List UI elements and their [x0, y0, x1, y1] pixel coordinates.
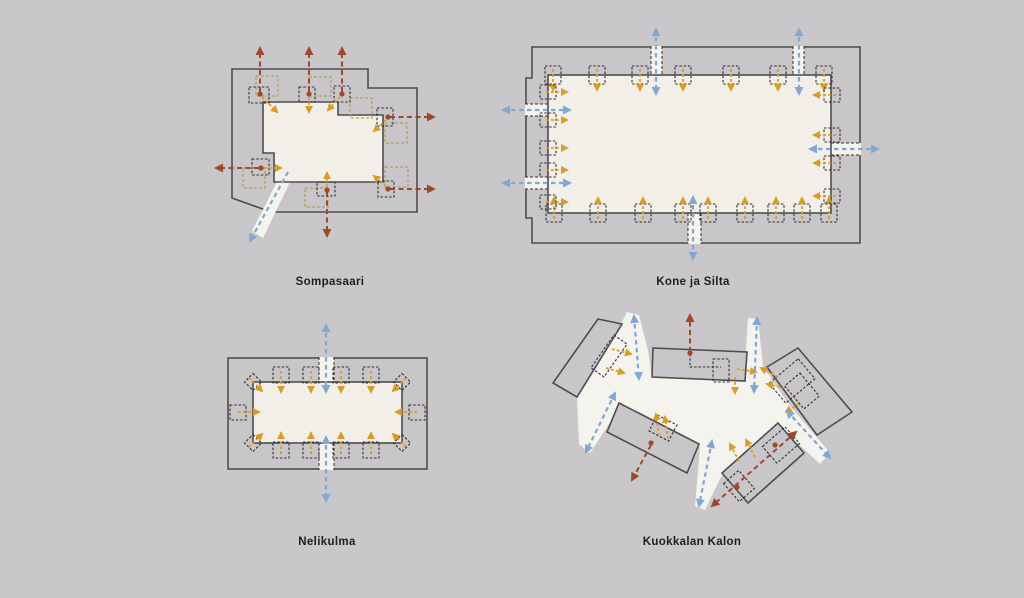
label-kone-ja-silta: Kone ja Silta	[656, 276, 730, 288]
diagram-kone-ja-silta	[503, 29, 878, 259]
courtyard	[548, 75, 831, 213]
diagram-kuokkalan-kalon	[553, 312, 852, 510]
diagram-sompasaari	[216, 48, 434, 241]
label-nelikulma: Nelikulma	[298, 536, 355, 548]
diagram-nelikulma	[228, 325, 427, 501]
plan-comparison-sheet: { "page": { "width": 1024, "height": 598…	[0, 0, 1024, 598]
plan-diagrams-canvas	[0, 0, 1024, 598]
label-kuokkalan-kalon: Kuokkalan Kalon	[643, 536, 742, 548]
label-sompasaari: Sompasaari	[296, 276, 365, 288]
courtyard	[253, 382, 402, 443]
